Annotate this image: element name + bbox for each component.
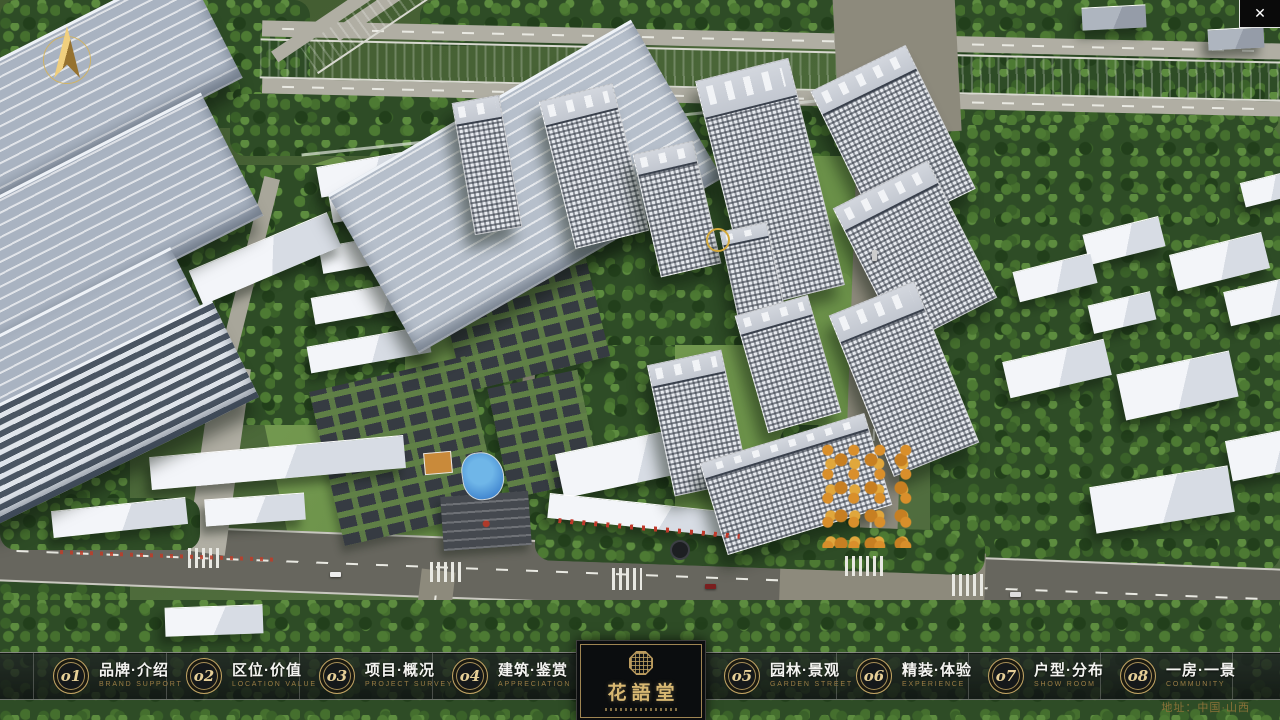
crosswalk (952, 574, 984, 596)
nav-item-architecture[interactable]: o4 建筑·鉴赏APPRECIATION (432, 653, 565, 699)
item-label-en: EXPERIENCE (902, 681, 972, 689)
item-number: o6 (864, 667, 884, 685)
logo-seal-pattern (631, 653, 652, 674)
item-number-badge: o6 (856, 658, 892, 694)
address-label: 地址：中国·山西 (1161, 699, 1250, 715)
close-icon: ✕ (1254, 5, 1266, 22)
pavilion (440, 491, 532, 551)
item-label-en: SHOW ROOM (1034, 681, 1104, 689)
logo-seal-icon (629, 651, 653, 675)
item-number-badge: o4 (452, 658, 488, 694)
car (330, 572, 341, 577)
item-number: o1 (61, 667, 81, 685)
logo-title: 花語堂 (602, 678, 679, 705)
orange-wall-building (423, 451, 453, 475)
autumn-trees (820, 443, 915, 548)
nav-item-location-value[interactable]: o2 区位·价值LOCATION VALUE (166, 653, 299, 699)
car (1010, 592, 1021, 597)
item-label-zh: 精装·体验 (902, 663, 972, 680)
item-number: o8 (1128, 667, 1148, 685)
crosswalk (430, 562, 462, 582)
item-number-badge: o2 (186, 658, 222, 694)
item-label-en: COMMUNITY (1166, 681, 1236, 689)
item-number-badge: o3 (319, 658, 355, 694)
crosswalk (612, 568, 642, 590)
logo-subtitle-line (605, 708, 677, 711)
item-number: o5 (732, 667, 752, 685)
car (705, 584, 716, 589)
item-label-zh: 户型·分布 (1034, 663, 1104, 680)
item-number-badge: o7 (988, 658, 1024, 694)
item-label-en: APPRECIATION (498, 681, 571, 689)
playground-ring (706, 228, 730, 252)
item-label-zh: 建筑·鉴赏 (498, 663, 571, 680)
sales-presentation-screen: ✕ o1 品牌·介绍BRAND SUPPORT o2 区位·价值LOCATION… (0, 0, 1280, 720)
nav-item-room-view[interactable]: o8 一房·一景COMMUNITY (1100, 653, 1233, 699)
entrance-gate (670, 540, 690, 560)
nav-item-floorplans[interactable]: o7 户型·分布SHOW ROOM (968, 653, 1101, 699)
nav-item-garden-landscape[interactable]: o5 园林·景观GARDEN STREET (704, 653, 837, 699)
item-number: o7 (996, 667, 1016, 685)
item-number: o2 (194, 667, 214, 685)
crosswalk (845, 556, 885, 576)
rooftop (1207, 27, 1264, 51)
item-number-badge: o8 (1120, 658, 1156, 694)
car (872, 250, 877, 261)
nav-item-brand-intro[interactable]: o1 品牌·介绍BRAND SUPPORT (33, 653, 166, 699)
project-logo-panel[interactable]: 花語堂 (576, 640, 706, 720)
item-number: o4 (460, 667, 480, 685)
rooftop (1081, 4, 1146, 30)
nav-item-experience[interactable]: o6 精装·体验EXPERIENCE (836, 653, 969, 699)
compass-north-icon (38, 26, 96, 90)
item-number-badge: o1 (53, 658, 89, 694)
item-label-zh: 一房·一景 (1166, 663, 1236, 680)
nav-item-project-survey[interactable]: o3 项目·概况PROJECT SURVEY (299, 653, 432, 699)
close-button[interactable]: ✕ (1239, 0, 1280, 28)
low-building (165, 604, 264, 636)
item-number-badge: o5 (724, 658, 760, 694)
item-number: o3 (327, 667, 347, 685)
